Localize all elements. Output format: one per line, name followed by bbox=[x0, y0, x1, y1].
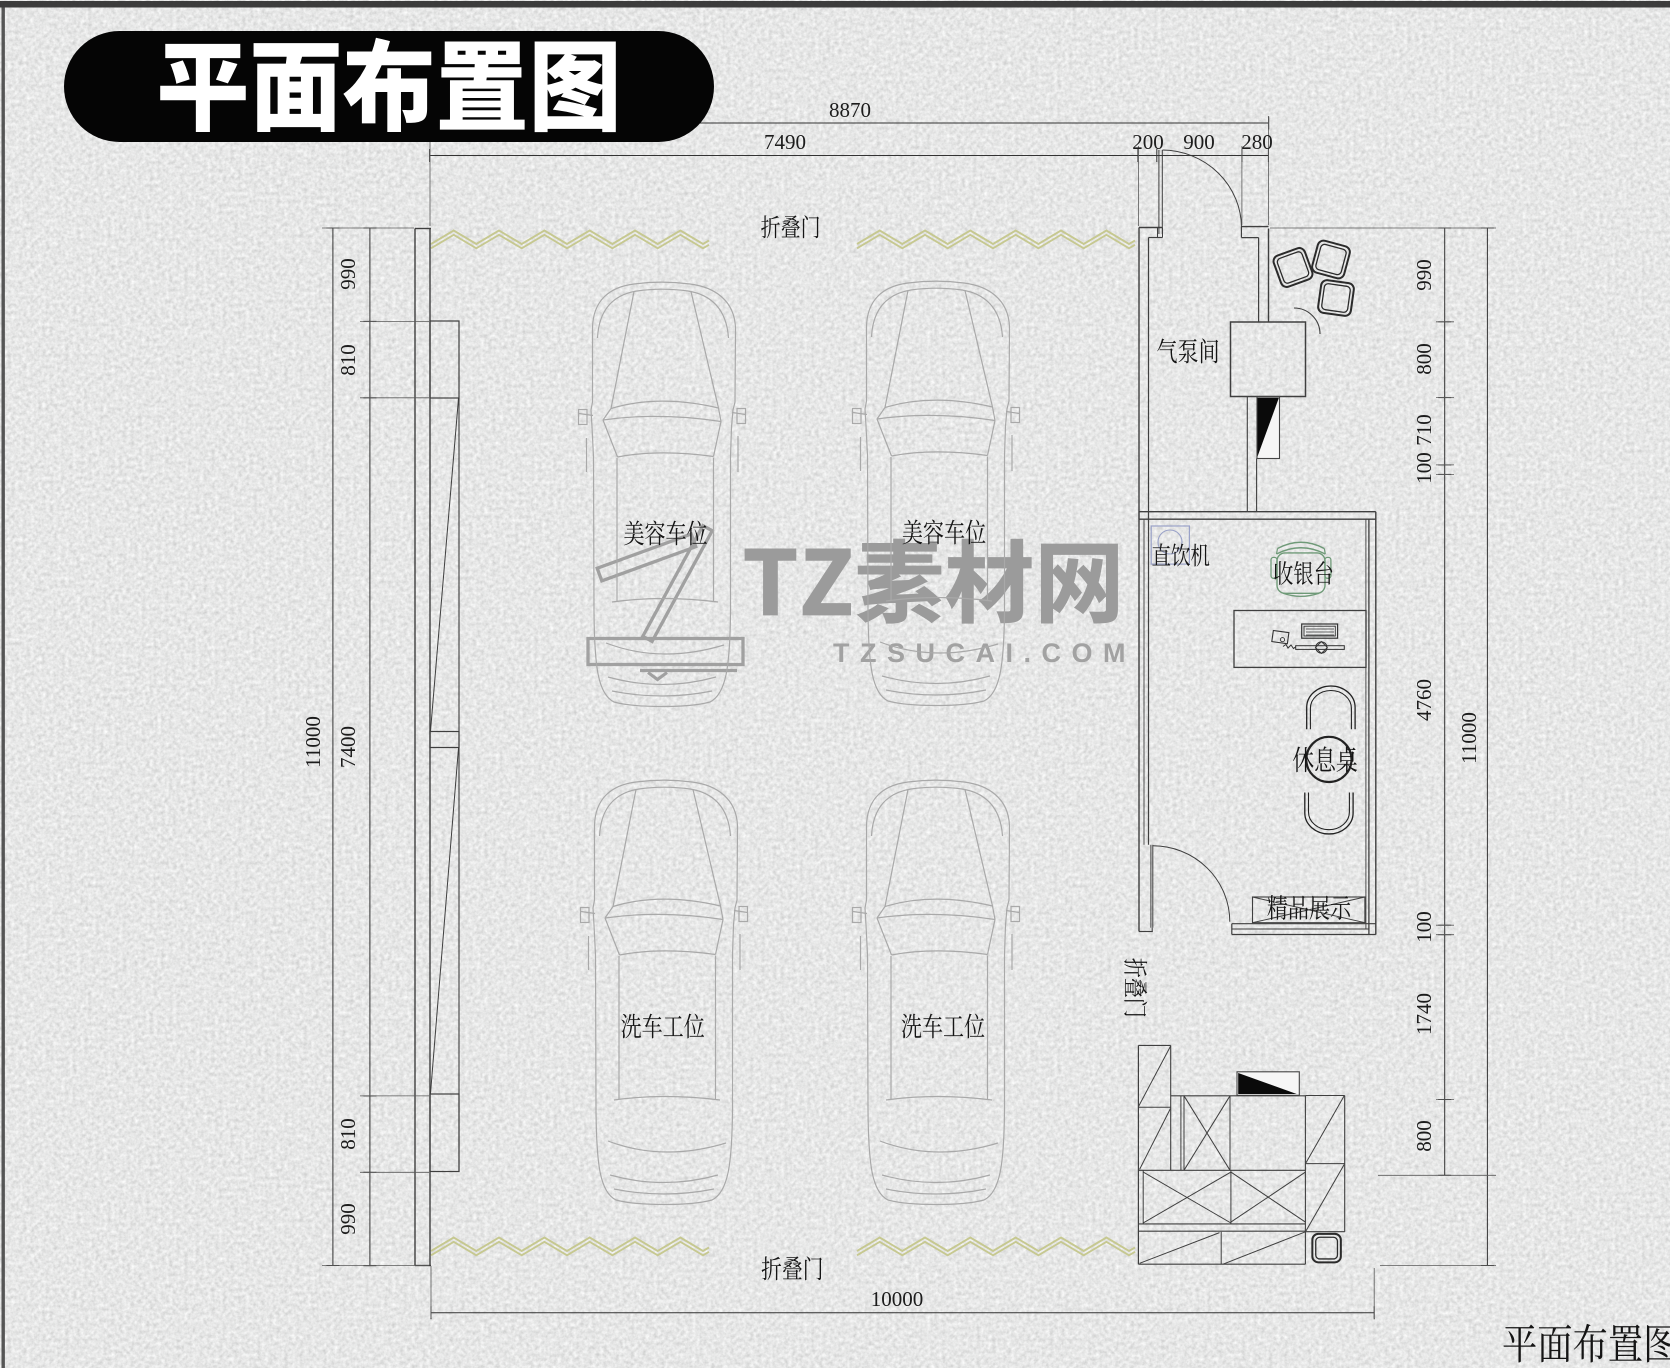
svg-text:800: 800 bbox=[1412, 343, 1436, 375]
svg-text:1740: 1740 bbox=[1412, 993, 1436, 1035]
svg-text:810: 810 bbox=[336, 344, 360, 376]
svg-text:11000: 11000 bbox=[1457, 712, 1481, 764]
svg-text:100: 100 bbox=[1412, 911, 1436, 943]
svg-text:7490: 7490 bbox=[764, 130, 806, 154]
svg-text:7400: 7400 bbox=[336, 726, 360, 768]
svg-text:4760: 4760 bbox=[1412, 679, 1436, 721]
svg-text:8870: 8870 bbox=[829, 98, 871, 122]
svg-text:990: 990 bbox=[336, 1203, 360, 1235]
svg-text:800: 800 bbox=[1412, 1120, 1436, 1152]
svg-text:710: 710 bbox=[1412, 414, 1436, 446]
svg-text:990: 990 bbox=[336, 258, 360, 290]
svg-text:200: 200 bbox=[1132, 130, 1164, 154]
svg-text:100: 100 bbox=[1412, 452, 1436, 484]
svg-text:TZSUCAI.COM: TZSUCAI.COM bbox=[833, 638, 1136, 668]
svg-text:10000: 10000 bbox=[871, 1287, 924, 1311]
svg-text:280: 280 bbox=[1241, 130, 1273, 154]
svg-text:11000: 11000 bbox=[301, 716, 325, 768]
svg-text:900: 900 bbox=[1183, 130, 1215, 154]
svg-text:810: 810 bbox=[336, 1118, 360, 1150]
svg-text:990: 990 bbox=[1412, 259, 1436, 291]
